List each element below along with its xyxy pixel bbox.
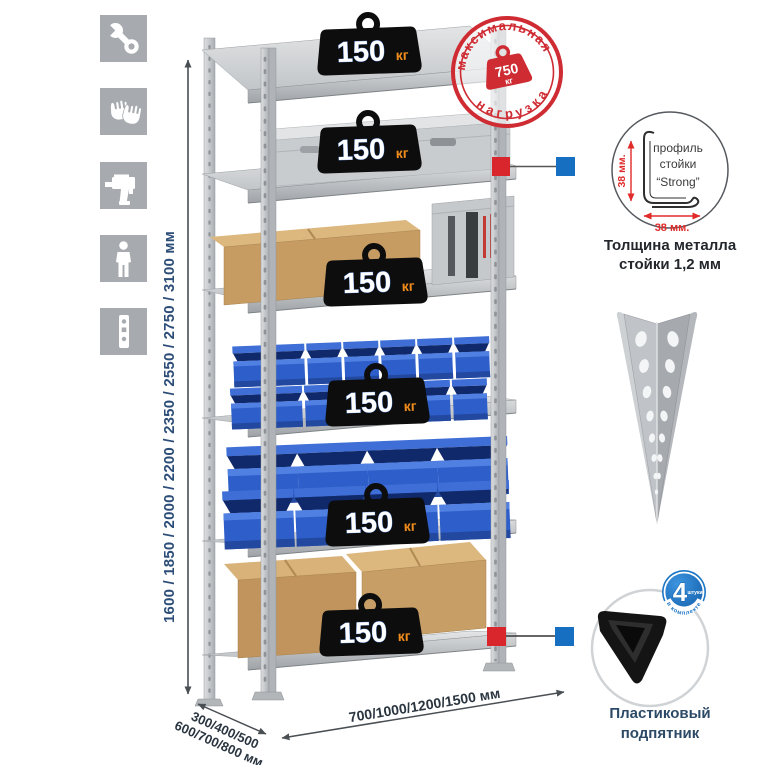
infographic-canvas: 150 кг 150 кг 150 кг 150 кг 150 кг	[0, 0, 765, 765]
callout-marker-red-top	[492, 157, 510, 176]
svg-text:“Strong”: “Strong”	[656, 175, 699, 189]
svg-text:кг: кг	[397, 628, 411, 644]
svg-text:стойки: стойки	[660, 157, 697, 171]
profile-dim-horizontal: 38 мм.	[655, 222, 690, 234]
profile-detail: 38 мм. 38 мм. профиль стойки “Strong”	[612, 112, 728, 234]
height-dimension-label: 1600 / 1850 / 2000 / 2200 / 2350 / 2550 …	[161, 177, 179, 677]
svg-text:150: 150	[336, 133, 385, 167]
svg-text:кг: кг	[395, 145, 409, 161]
corner-post-picture	[617, 312, 697, 524]
profile-caption: Толщина металла стойки 1,2 мм	[575, 236, 765, 274]
callout-marker-blue-top	[556, 157, 575, 176]
callout-top	[492, 157, 575, 176]
callout-bottom	[487, 627, 574, 646]
callout-marker-blue-bottom	[555, 627, 574, 646]
callout-marker-red-bottom	[487, 627, 506, 646]
svg-text:профиль: профиль	[653, 141, 703, 155]
svg-text:150: 150	[344, 506, 393, 540]
svg-text:150: 150	[338, 616, 387, 650]
profile-dim-vertical: 38 мм.	[616, 154, 628, 187]
svg-text:кг: кг	[403, 398, 417, 414]
post-back-left	[195, 38, 223, 706]
foot-caption: Пластиковый подпятник	[570, 704, 750, 744]
svg-text:кг: кг	[395, 47, 409, 63]
rack-illustration: 150 кг 150 кг 150 кг 150 кг 150 кг	[0, 0, 765, 765]
svg-text:4: 4	[673, 577, 688, 607]
svg-text:150: 150	[342, 266, 391, 300]
load-badge-1: 150 кг	[316, 13, 422, 76]
quantity-badge: 4 штуки в комплекте	[662, 570, 706, 617]
svg-text:кг: кг	[401, 278, 415, 294]
plastic-foot-detail: 4 штуки в комплекте	[592, 570, 708, 706]
svg-text:штуки: штуки	[687, 590, 702, 596]
svg-text:150: 150	[344, 386, 393, 420]
svg-text:150: 150	[336, 35, 385, 69]
svg-text:кг: кг	[403, 518, 417, 534]
